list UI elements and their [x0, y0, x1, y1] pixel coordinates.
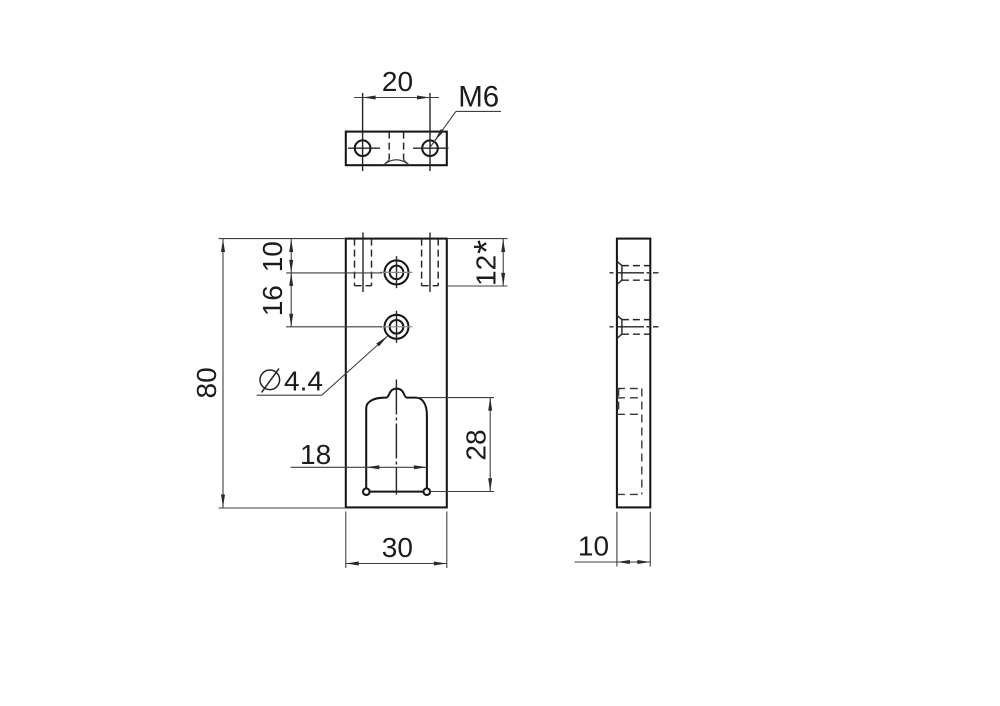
svg-text:16: 16: [257, 285, 288, 316]
svg-text:4.4: 4.4: [284, 365, 323, 396]
svg-text:28: 28: [460, 429, 491, 460]
svg-text:12: 12: [471, 255, 502, 286]
svg-text:18: 18: [300, 439, 331, 470]
svg-text:M6: M6: [458, 81, 499, 114]
svg-text:10: 10: [578, 531, 609, 562]
svg-text:20: 20: [382, 66, 413, 97]
svg-text:10: 10: [257, 241, 288, 272]
svg-text:*: *: [466, 240, 507, 254]
svg-text:30: 30: [382, 532, 413, 563]
svg-text:80: 80: [191, 367, 222, 398]
